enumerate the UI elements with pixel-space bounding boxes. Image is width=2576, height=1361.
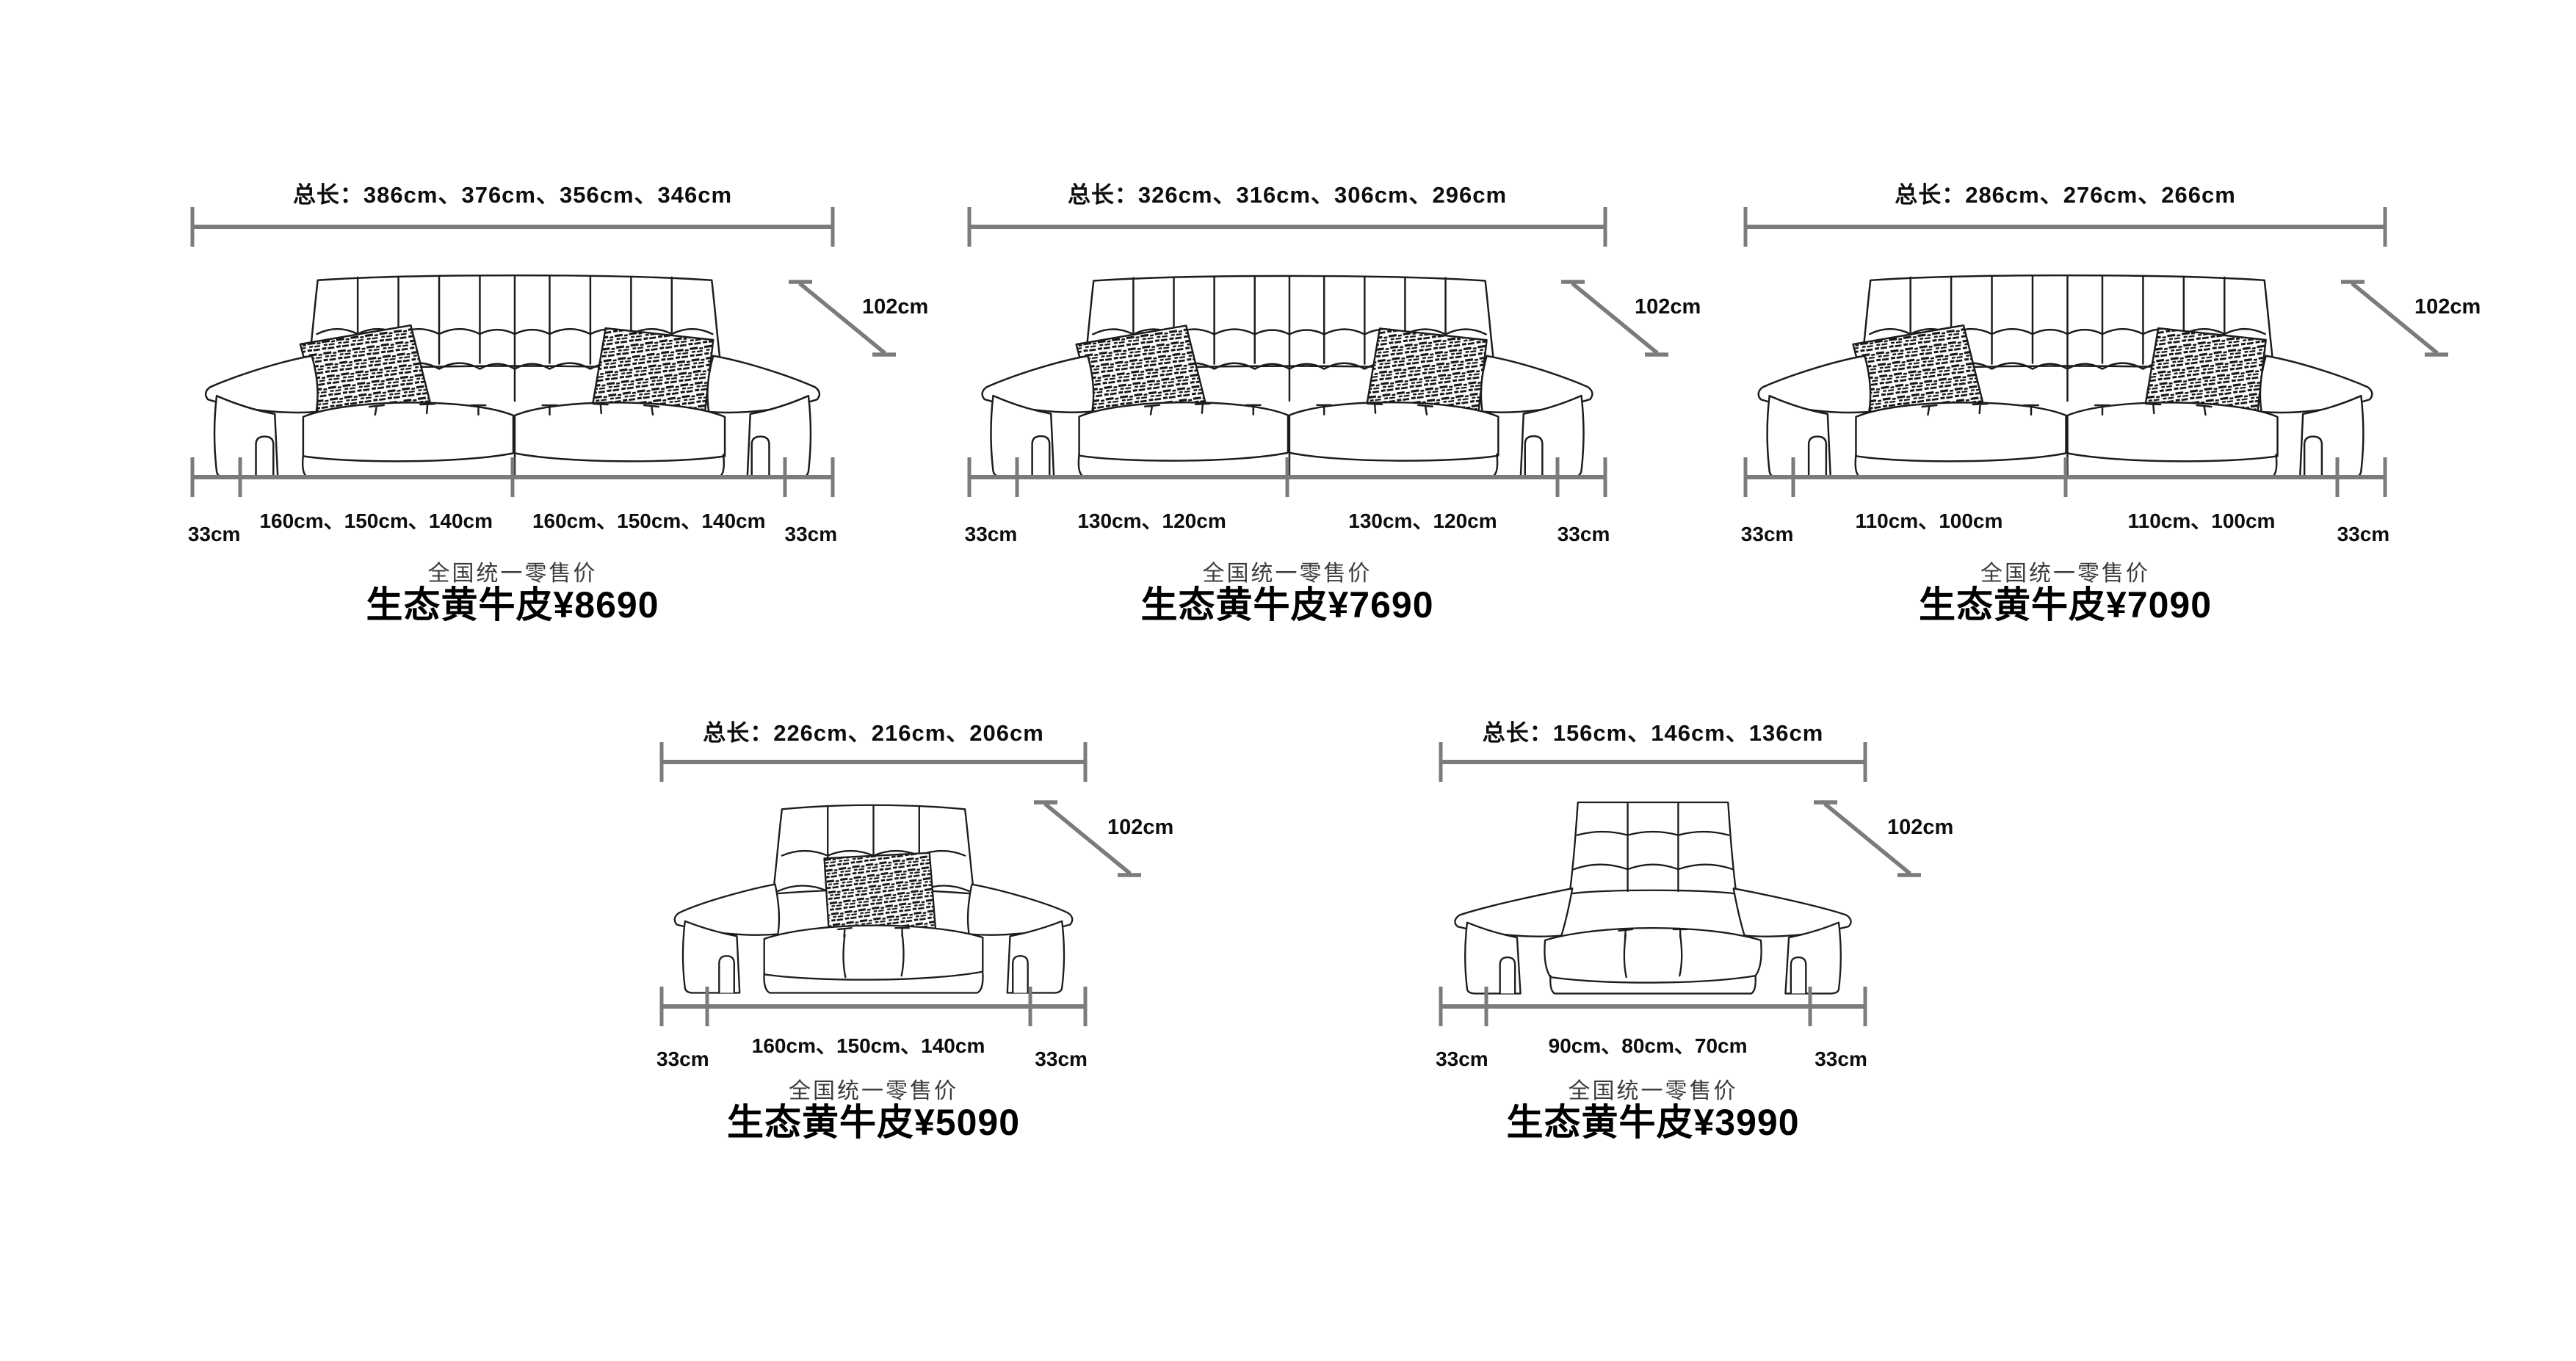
dimension-tick <box>1084 987 1088 1026</box>
seat-width-label: 110cm、100cm <box>2128 505 2276 534</box>
seat-width-label: 160cm、150cm、140cm <box>532 505 766 534</box>
dimension-tick <box>191 207 195 247</box>
depth-label: 102cm <box>862 295 928 319</box>
dimension-tick <box>2384 457 2387 497</box>
dimension-tick <box>239 457 242 497</box>
dimension-tick <box>1792 457 1795 497</box>
depth-dimension: 102cm <box>787 276 978 368</box>
depth-dimension: 102cm <box>2340 276 2530 368</box>
dimension-tick <box>660 742 664 782</box>
retail-price-caption: 全国统一零售价 <box>192 555 833 587</box>
dimension-tick <box>1484 987 1488 1026</box>
seat-dimension-labels: 33cm 160cm、150cm、140cm 33cm <box>662 1030 1085 1077</box>
dimension-bar <box>662 760 1085 764</box>
price-label: 生态黄牛皮¥7690 <box>969 584 1605 625</box>
dimension-tick <box>1744 457 1748 497</box>
total-length-dimension-line <box>969 207 1605 247</box>
dimension-tick <box>783 457 786 497</box>
armrest-width-label-left: 33cm <box>1741 523 1794 546</box>
dimension-bar <box>1441 1004 1865 1009</box>
dimension-tick <box>831 457 835 497</box>
armrest-width-label-left: 33cm <box>188 523 241 546</box>
dimension-bar <box>1441 760 1865 764</box>
product-card: 总长：286cm、276cm、266cm <box>1745 176 2385 661</box>
dimension-tick <box>2063 457 2067 497</box>
dimension-bar <box>662 1004 1085 1009</box>
dimension-tick <box>1015 457 1019 497</box>
dimension-tick <box>1556 457 1560 497</box>
seat-dimension-labels: 33cm 160cm、150cm、140cm 160cm、150cm、140cm… <box>192 505 833 552</box>
sofa-illustration <box>969 264 1605 482</box>
seat-dimension-line <box>969 457 1605 497</box>
seat-dimension-labels: 33cm 110cm、100cm 110cm、100cm 33cm <box>1745 505 2385 552</box>
seat-width-label: 110cm、100cm <box>1856 505 2003 534</box>
price-label: 生态黄牛皮¥3990 <box>1441 1102 1865 1143</box>
depth-label: 102cm <box>1635 295 1701 319</box>
dimension-bar <box>1745 225 2385 229</box>
seat-dimension-labels: 33cm 90cm、80cm、70cm 33cm <box>1441 1030 1865 1077</box>
dimension-tick <box>1604 207 1607 247</box>
dimension-tick <box>1744 207 1748 247</box>
dimension-tick <box>660 987 664 1026</box>
depth-dimension: 102cm <box>1812 796 2003 888</box>
sofa-illustration <box>1745 264 2385 482</box>
armrest-width-label-left: 33cm <box>1436 1048 1488 1071</box>
product-card: 总长：386cm、376cm、356cm、346cm <box>192 176 833 661</box>
seat-width-label: 130cm、120cm <box>1077 505 1226 534</box>
dimension-tick <box>2384 207 2387 247</box>
product-card: 总长：326cm、316cm、306cm、296cm <box>969 176 1605 661</box>
sofa-illustration <box>1441 793 1865 998</box>
depth-dimension: 102cm <box>1560 276 1751 368</box>
sofa-illustration <box>192 264 833 482</box>
total-length-dimension-line <box>1745 207 2385 247</box>
dimension-bar <box>969 225 1605 229</box>
depth-dimension: 102cm <box>1032 796 1223 888</box>
dimension-tick <box>1286 457 1289 497</box>
price-label: 生态黄牛皮¥7090 <box>1745 584 2385 625</box>
price-label: 生态黄牛皮¥5090 <box>662 1102 1085 1143</box>
total-length-dimension-line <box>662 742 1085 782</box>
depth-label: 102cm <box>1887 816 1953 840</box>
dimension-tick <box>511 457 515 497</box>
dimension-tick <box>968 207 972 247</box>
armrest-width-label-right: 33cm <box>1035 1048 1088 1071</box>
retail-price-caption: 全国统一零售价 <box>969 555 1605 587</box>
total-length-label: 总长：286cm、276cm、266cm <box>1745 182 2385 208</box>
armrest-width-label-right: 33cm <box>2337 523 2390 546</box>
retail-price-caption: 全国统一零售价 <box>662 1073 1085 1105</box>
product-card: 总长：226cm、216cm、206cm <box>662 686 1085 1171</box>
depth-label: 102cm <box>1107 816 1173 840</box>
depth-label: 102cm <box>2414 295 2481 319</box>
dimension-tick <box>1028 987 1032 1026</box>
dimension-tick <box>1864 987 1867 1026</box>
product-card: 总长：156cm、146cm、136cm <box>1441 686 1865 1171</box>
seat-dimension-line <box>662 987 1085 1026</box>
armrest-width-label-right: 33cm <box>785 523 838 546</box>
dimension-tick <box>2335 457 2339 497</box>
dimension-tick <box>1439 742 1443 782</box>
dimension-tick <box>1084 742 1088 782</box>
armrest-width-label-left: 33cm <box>656 1048 709 1071</box>
seat-dimension-line <box>1745 457 2385 497</box>
retail-price-caption: 全国统一零售价 <box>1745 555 2385 587</box>
dimension-tick <box>1808 987 1812 1026</box>
armrest-width-label-right: 33cm <box>1557 523 1610 546</box>
dimension-tick <box>191 457 195 497</box>
dimension-tick <box>1864 742 1867 782</box>
total-length-dimension-line <box>1441 742 1865 782</box>
sofa-illustration <box>662 793 1085 998</box>
price-label: 生态黄牛皮¥8690 <box>192 584 833 625</box>
total-length-label: 总长：326cm、316cm、306cm、296cm <box>969 182 1605 208</box>
seat-width-label: 160cm、150cm、140cm <box>752 1030 985 1059</box>
seat-width-label: 130cm、120cm <box>1348 505 1497 534</box>
catalog-board: 总长：386cm、376cm、356cm、346cm <box>0 0 2576 1361</box>
dimension-tick <box>968 457 972 497</box>
seat-width-label: 160cm、150cm、140cm <box>259 505 493 534</box>
dimension-tick <box>1604 457 1607 497</box>
total-length-label: 总长：386cm、376cm、356cm、346cm <box>192 182 833 208</box>
seat-width-label: 90cm、80cm、70cm <box>1549 1030 1748 1059</box>
retail-price-caption: 全国统一零售价 <box>1441 1073 1865 1105</box>
armrest-width-label-right: 33cm <box>1815 1048 1867 1071</box>
dimension-tick <box>1439 987 1443 1026</box>
dimension-tick <box>831 207 835 247</box>
dimension-tick <box>705 987 709 1026</box>
seat-dimension-line <box>192 457 833 497</box>
total-length-dimension-line <box>192 207 833 247</box>
seat-dimension-line <box>1441 987 1865 1026</box>
dimension-bar <box>192 225 833 229</box>
seat-dimension-labels: 33cm 130cm、120cm 130cm、120cm 33cm <box>969 505 1605 552</box>
armrest-width-label-left: 33cm <box>965 523 1018 546</box>
